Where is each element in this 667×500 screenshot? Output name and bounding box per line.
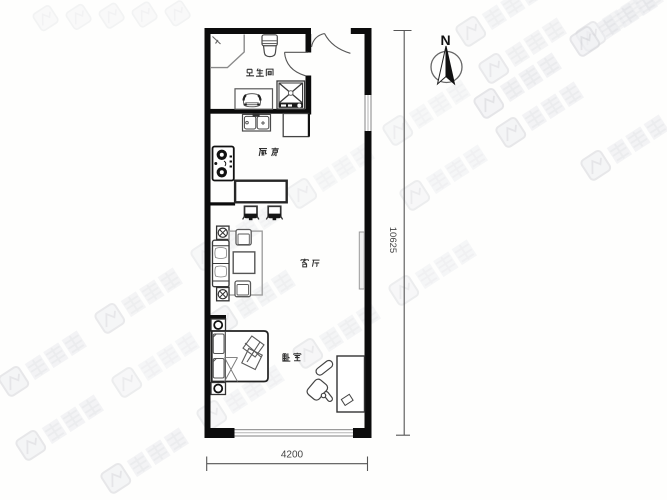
svg-text:10625: 10625 — [387, 227, 398, 253]
svg-text:N: N — [440, 32, 450, 48]
svg-text:4200: 4200 — [281, 450, 304, 461]
